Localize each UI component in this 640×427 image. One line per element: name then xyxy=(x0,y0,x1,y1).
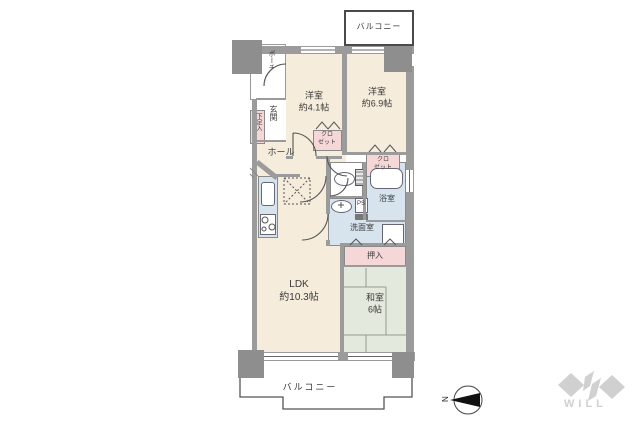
western-room-1-name: 洋室 xyxy=(305,90,323,100)
balcony-bottom-label: バルコニー xyxy=(283,382,338,394)
wall-oshiire-top xyxy=(340,243,406,246)
wall-left xyxy=(252,100,257,358)
logo-diamond-left xyxy=(558,373,584,397)
closet1-label: クロ ゼット xyxy=(318,132,336,148)
wall-bedroom-divider xyxy=(342,54,347,155)
wall-toilet-bottom xyxy=(330,196,366,198)
ldk-label: LDK 約10.3帖 xyxy=(279,278,318,304)
western-room-1-size: 約4.1帖 xyxy=(299,102,330,112)
compass-circle xyxy=(454,386,482,414)
logo-zigzag-lower xyxy=(588,378,601,401)
closet1-line2: ゼット xyxy=(318,140,336,146)
will-logo: WILL xyxy=(558,371,625,410)
window-top-2 xyxy=(352,47,384,53)
wall-oshiire-bottom xyxy=(344,265,406,267)
ldk-size: 約10.3帖 xyxy=(279,292,318,303)
window-bottom-ldk xyxy=(262,353,338,360)
closet2-label: クロ ゼット xyxy=(374,157,392,173)
western-room-2-label: 洋室 約6.9帖 xyxy=(362,86,393,109)
closet2-line1: クロ xyxy=(377,157,389,163)
genkan-label: 玄関 xyxy=(268,105,279,121)
closet2-line2: ゼット xyxy=(374,165,392,171)
hall-label: ホール xyxy=(267,147,294,159)
pillar-top-left xyxy=(232,40,262,74)
closet1-line1: クロ xyxy=(321,132,333,138)
pillar-bottom-left xyxy=(238,350,264,378)
compass-icon: N xyxy=(441,386,482,414)
logo-zigzag-upper xyxy=(583,371,594,391)
japanese-room-label: 和室 6帖 xyxy=(366,292,384,315)
wall-bed2-bottom xyxy=(342,152,406,155)
oshiire-label: 押入 xyxy=(367,251,383,261)
wall-water-left-upper xyxy=(326,156,330,214)
pillar-bottom-right xyxy=(392,352,414,378)
japanese-room-name: 和室 xyxy=(366,292,384,302)
washroom-label: 洗面室 xyxy=(350,223,374,233)
western-room-2-size: 約6.9帖 xyxy=(362,98,393,108)
line-porch-genkan xyxy=(256,98,286,100)
compass-needle xyxy=(450,393,480,407)
wall-bath-divider xyxy=(363,162,366,220)
bath-label: 浴室 xyxy=(379,194,395,204)
japanese-room-size: 6帖 xyxy=(368,304,382,314)
wall-hall-ldk xyxy=(276,174,300,177)
basin-icon xyxy=(331,200,352,213)
logo-diamond-right xyxy=(599,375,625,399)
wall-right xyxy=(406,66,414,356)
logo-wordmark: WILL xyxy=(564,398,607,410)
wall-washitsu-left xyxy=(340,243,344,352)
shoe-cabinet-label: 下足入 xyxy=(254,113,263,131)
wall-water-left-lower xyxy=(326,240,330,246)
floor-plan: バルコニー ポーチ 玄関 下足入 xyxy=(0,0,640,427)
balcony-top-label: バルコニー xyxy=(357,22,402,32)
western-room-2-name: 洋室 xyxy=(368,86,386,96)
compass-north-label: N xyxy=(441,396,450,402)
line-genkan-hall xyxy=(256,140,286,142)
window-right-bath xyxy=(406,170,413,192)
wall-bath-bottom xyxy=(366,220,406,222)
laundry-space xyxy=(382,224,404,244)
kitchen-sink xyxy=(261,182,275,206)
toilet-icon xyxy=(334,172,355,186)
western-room-1-label: 洋室 約4.1帖 xyxy=(299,90,330,113)
pipe-space-label: PS xyxy=(357,201,365,209)
pillar-top-right xyxy=(384,46,412,72)
stove xyxy=(260,214,276,235)
window-top-1 xyxy=(301,47,335,53)
ldk-name: LDK xyxy=(289,279,308,290)
porch-label: ポーチ xyxy=(266,50,276,71)
